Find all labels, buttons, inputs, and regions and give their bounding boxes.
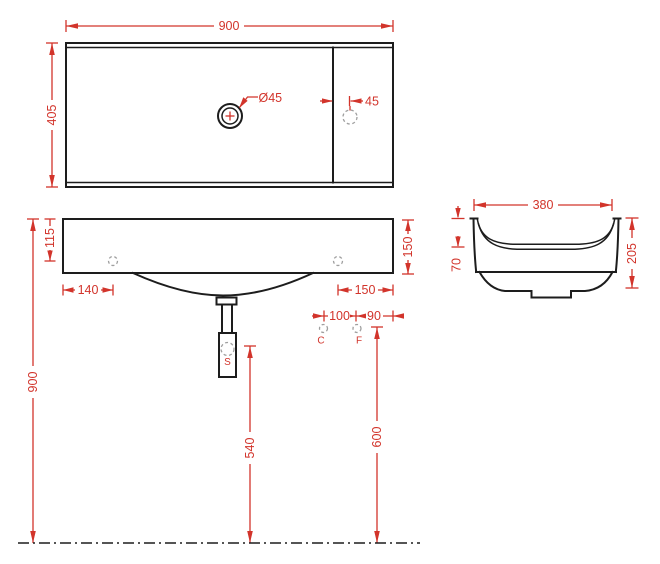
underside-profile [480, 272, 613, 298]
arrowhead [381, 23, 393, 29]
dim-side-height: 205 [625, 218, 639, 288]
dim-label: 540 [243, 438, 257, 459]
dim-side-width: 380 [474, 198, 612, 212]
dim-label: 150 [401, 237, 415, 258]
arrowhead [49, 43, 55, 55]
cold-supply-label: C [317, 336, 324, 347]
cold-supply-hole [320, 325, 328, 333]
dim-top-width: 900 [66, 19, 393, 33]
dim-drain-diameter: Ø45 [239, 91, 282, 108]
arrowhead [405, 220, 411, 231]
arrowhead [600, 202, 612, 208]
drain-tailpipe [222, 305, 232, 334]
arrowhead [629, 276, 635, 288]
mounting-hole-right [334, 257, 343, 266]
siphon-label: S [224, 357, 231, 368]
arrowhead [474, 202, 486, 208]
dim-front-right-height: 150 [401, 220, 415, 274]
arrowhead [351, 98, 362, 103]
arrowhead [30, 531, 36, 543]
dim-label: 205 [625, 243, 639, 264]
basin-underside-curve [133, 273, 313, 296]
siphon-body [219, 333, 236, 377]
dim-label: 115 [43, 228, 57, 248]
arrowhead [374, 328, 380, 340]
washbasin-drawing: 900 405 Ø45 45 S [0, 0, 660, 564]
dim-label: 380 [533, 198, 554, 212]
dim-side-lip-height: 70 [450, 206, 465, 272]
technical-drawing-page: 900 405 Ø45 45 S [0, 0, 660, 564]
arrowhead [313, 313, 324, 318]
bowl-inner-curve [478, 220, 615, 244]
dim-label: 405 [45, 105, 59, 126]
dim-label: 900 [26, 372, 40, 393]
arrowhead [247, 531, 253, 543]
arrowhead [357, 313, 368, 318]
arrowhead [629, 218, 635, 230]
arrowhead [322, 98, 333, 103]
arrowhead [47, 251, 52, 262]
dim-mount-height: 900 [26, 219, 40, 543]
hot-supply-hole [353, 325, 361, 333]
dim-label: 70 [450, 258, 464, 272]
arrowhead [455, 237, 460, 248]
arrowhead [247, 347, 253, 359]
faucet-hole [343, 110, 357, 124]
dim-hole-right-offset: 150 [338, 283, 393, 297]
dim-label: 150 [355, 283, 376, 297]
arrowhead [374, 531, 380, 543]
arrowhead [49, 175, 55, 187]
hot-supply-label: F [356, 336, 362, 347]
siphon-outlet-hole [221, 343, 234, 356]
supply-dims: 100 90 C F [312, 309, 404, 347]
mounting-hole-left [109, 257, 118, 266]
dim-siphon-height: 540 [243, 346, 257, 543]
dim-label: 45 [365, 95, 379, 109]
dim-label: Ø45 [259, 91, 283, 105]
dim-hole-left-offset: 140 [63, 283, 113, 297]
dim-supply-height: 600 [370, 327, 384, 543]
side-view [471, 219, 621, 298]
arrowhead [405, 263, 411, 274]
dim-top-depth: 405 [45, 43, 59, 187]
arrowhead [455, 208, 460, 219]
bowl-front-edge-curve [479, 224, 614, 249]
arrowhead [383, 287, 394, 292]
arrowhead [393, 313, 404, 318]
arrowhead [63, 287, 74, 292]
arrowhead [30, 219, 36, 231]
top-view [66, 43, 393, 187]
arrowhead [103, 287, 114, 292]
dim-label: 900 [219, 19, 240, 33]
dim-label-supply-edge: 90 [367, 309, 381, 323]
dim-hole-top-offset: 115 [43, 219, 57, 261]
front-view: S [63, 219, 393, 377]
left-wall-outer [474, 219, 477, 273]
arrowhead [66, 23, 78, 29]
dim-label: 140 [78, 283, 99, 297]
right-wall-outer [616, 219, 619, 273]
dim-label: 600 [370, 427, 384, 448]
dim-faucet-offset: 45 [320, 95, 379, 111]
arrowhead [338, 287, 349, 292]
dim-label-supply-spacing: 100 [329, 309, 350, 323]
drain-flange [217, 298, 237, 305]
